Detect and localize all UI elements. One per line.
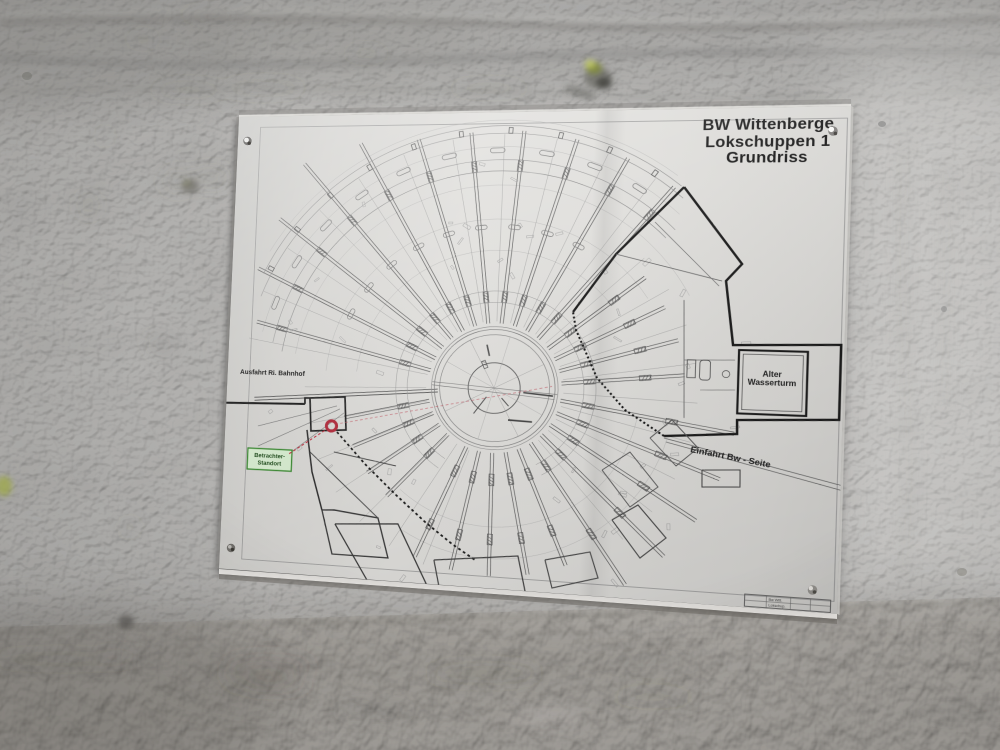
svg-text:AlterWasserturm: AlterWasserturm — [748, 370, 797, 388]
svg-text:BW WittenbergeLokschuppen 1Gru: BW WittenbergeLokschuppen 1Grundriss — [701, 114, 834, 166]
svg-text:Betrachter-Standort: Betrachter-Standort — [254, 453, 285, 468]
svg-text:Einfahrt Bw - Seite: Einfahrt Bw - Seite — [690, 444, 772, 470]
